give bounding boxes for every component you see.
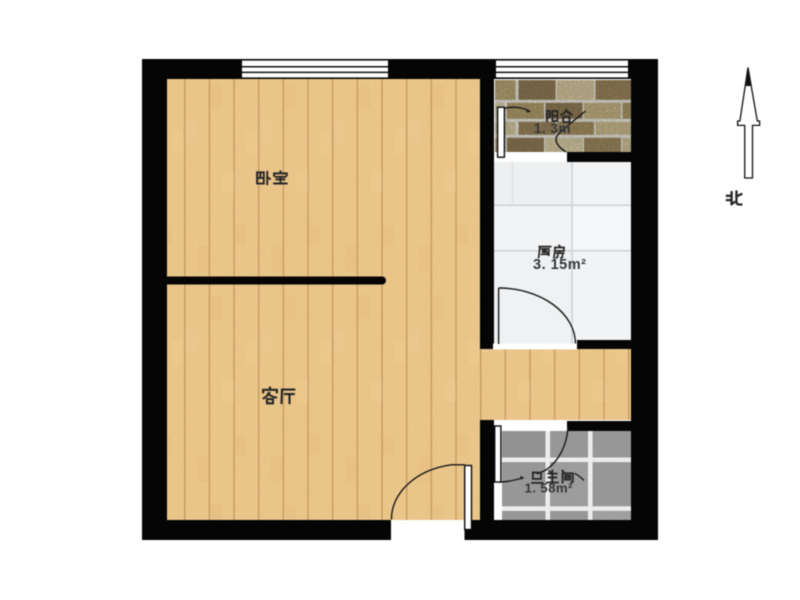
svg-text:1. 58m²: 1. 58m²: [525, 481, 573, 496]
svg-text:3. 15m²: 3. 15m²: [533, 257, 586, 273]
svg-text:1. 3m: 1. 3m: [534, 121, 571, 136]
